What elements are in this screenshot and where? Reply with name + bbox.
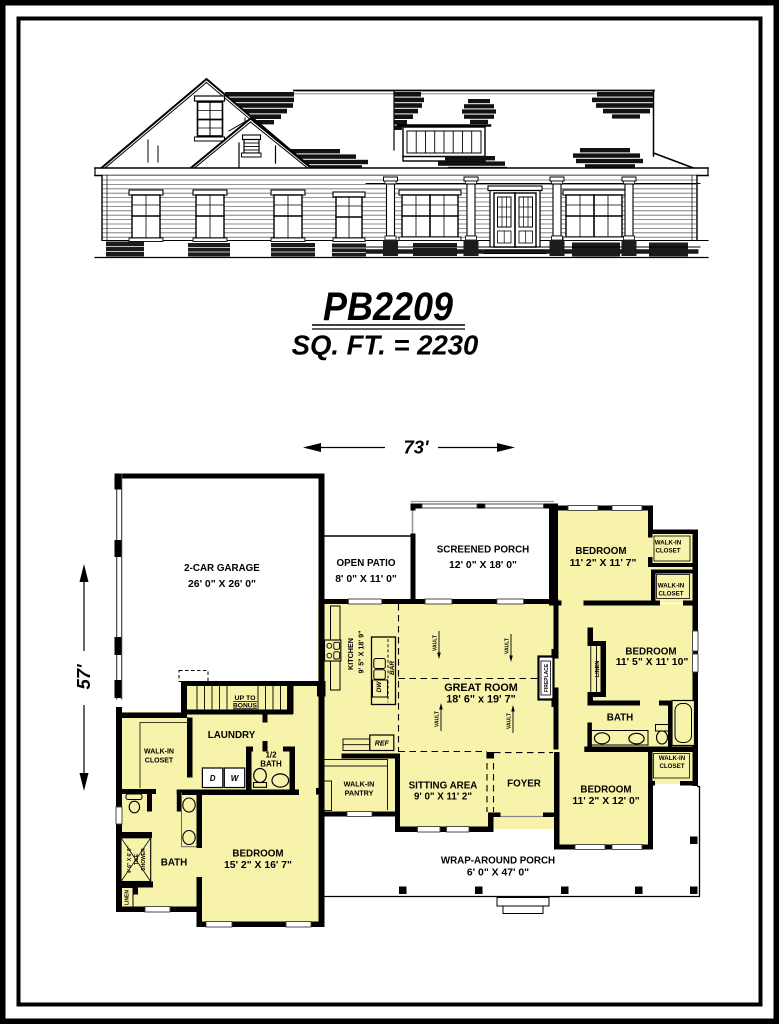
svg-text:15' 2" X 16' 7": 15' 2" X 16' 7" (224, 860, 292, 871)
svg-text:GREAT ROOM: GREAT ROOM (444, 682, 518, 694)
svg-text:VAULT: VAULT (507, 713, 513, 729)
svg-text:SCREENED PORCH: SCREENED PORCH (437, 545, 530, 556)
svg-text:WALK-IN: WALK-IN (659, 755, 686, 762)
svg-text:BEDROOM: BEDROOM (232, 849, 283, 860)
svg-text:FOYER: FOYER (507, 779, 541, 790)
svg-text:BATH: BATH (161, 858, 187, 869)
svg-text:BATH: BATH (260, 760, 282, 769)
svg-text:57': 57' (73, 664, 94, 690)
svg-text:CLOSET: CLOSET (145, 758, 174, 765)
svg-text:9' 0" X 11' 2": 9' 0" X 11' 2" (414, 792, 472, 803)
svg-text:BEDROOM: BEDROOM (575, 546, 626, 557)
svg-text:REF: REF (375, 740, 390, 747)
svg-text:LINEN: LINEN (595, 661, 601, 678)
svg-text:LAUNDRY: LAUNDRY (208, 730, 256, 741)
svg-text:73': 73' (404, 437, 430, 458)
svg-text:SHOWER: SHOWER (141, 848, 147, 871)
svg-text:CLOSET: CLOSET (659, 763, 684, 770)
svg-text:WALK-IN: WALK-IN (344, 780, 375, 789)
svg-text:11' 2" X 11' 7": 11' 2" X 11' 7" (570, 558, 637, 569)
svg-text:WALK-IN: WALK-IN (658, 583, 685, 590)
svg-text:CLOSET: CLOSET (658, 590, 683, 597)
svg-text:VAULT: VAULT (435, 711, 441, 727)
svg-text:4' 6" X 6' 0": 4' 6" X 6' 0" (127, 845, 133, 873)
svg-text:BEDROOM: BEDROOM (580, 785, 631, 796)
svg-text:KITCHEN: KITCHEN (346, 638, 355, 670)
svg-text:WALK-IN: WALK-IN (144, 749, 174, 756)
svg-text:WALK-IN: WALK-IN (655, 540, 682, 547)
svg-text:PB2209: PB2209 (323, 285, 454, 329)
svg-text:18' 6" x 19' 7": 18' 6" x 19' 7" (446, 694, 515, 706)
svg-text:VAULT: VAULT (505, 638, 511, 654)
svg-text:CLOSET: CLOSET (655, 547, 680, 554)
svg-text:PANTRY: PANTRY (345, 789, 374, 798)
svg-text:11' 5" X 11' 10": 11' 5" X 11' 10" (616, 657, 689, 668)
svg-text:LINEN: LINEN (124, 890, 130, 905)
svg-text:9' 5" X 18' 9": 9' 5" X 18' 9" (357, 630, 366, 673)
svg-text:OPEN PATIO: OPEN PATIO (337, 558, 396, 569)
svg-text:TILE: TILE (134, 853, 140, 864)
svg-text:2-CAR GARAGE: 2-CAR GARAGE (184, 563, 260, 574)
svg-text:1/2: 1/2 (265, 751, 277, 760)
svg-text:8' 0" X 11' 0": 8' 0" X 11' 0" (335, 574, 397, 585)
svg-text:D: D (210, 774, 216, 783)
svg-text:FIREPLACE: FIREPLACE (544, 663, 550, 692)
svg-text:VAULT: VAULT (433, 635, 439, 651)
svg-text:26' 0" X 26' 0": 26' 0" X 26' 0" (188, 579, 256, 590)
svg-text:11' 2" X 12' 0": 11' 2" X 12' 0" (572, 796, 639, 807)
svg-text:SQ. FT. = 2230: SQ. FT. = 2230 (292, 330, 479, 361)
svg-text:BAR: BAR (389, 661, 396, 675)
svg-text:12' 0" X 18' 0": 12' 0" X 18' 0" (449, 560, 517, 571)
svg-text:6' 0" X 47' 0": 6' 0" X 47' 0" (467, 868, 529, 879)
svg-text:BEDROOM: BEDROOM (625, 647, 676, 658)
svg-text:UP TO: UP TO (235, 695, 256, 702)
svg-text:DW: DW (376, 681, 383, 693)
svg-text:WRAP-AROUND PORCH: WRAP-AROUND PORCH (441, 856, 555, 867)
svg-text:BATH: BATH (607, 713, 633, 724)
svg-text:SITTING AREA: SITTING AREA (409, 781, 478, 792)
